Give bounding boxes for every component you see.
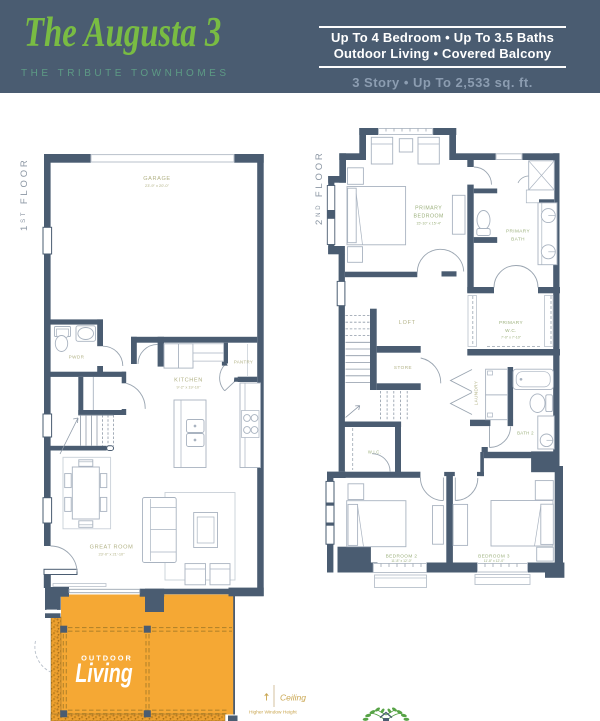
svg-text:BEDROOM: BEDROOM: [414, 214, 444, 220]
svg-text:15'-10" x 15'-4": 15'-10" x 15'-4": [416, 222, 441, 226]
svg-text:GARAGE: GARAGE: [143, 176, 171, 182]
svg-text:Living: Living: [75, 658, 132, 688]
svg-text:23'-9" x 20'-0": 23'-9" x 20'-0": [145, 183, 170, 188]
svg-text:2ND FLOOR: 2ND FLOOR: [314, 150, 325, 225]
svg-text:1ST FLOOR: 1ST FLOOR: [19, 157, 30, 231]
svg-text:STORE: STORE: [394, 365, 412, 370]
svg-text:LOFT: LOFT: [399, 320, 416, 326]
svg-text:BEDROOM 3: BEDROOM 3: [478, 554, 510, 559]
svg-text:9'-2" x 19'-10": 9'-2" x 19'-10": [177, 385, 202, 390]
svg-text:Ceiling: Ceiling: [280, 693, 306, 703]
svg-text:BEDROOM 2: BEDROOM 2: [386, 554, 418, 559]
svg-text:W.I.C.: W.I.C.: [368, 450, 381, 455]
svg-text:GREAT ROOM: GREAT ROOM: [90, 545, 134, 551]
svg-text:PRIMARY: PRIMARY: [415, 206, 442, 212]
svg-text:PRIMARY: PRIMARY: [506, 229, 531, 234]
svg-text:7'-0" x 7'-10": 7'-0" x 7'-10": [501, 336, 522, 340]
svg-text:LAUNDRY: LAUNDRY: [474, 381, 479, 406]
svg-text:PRIMARY: PRIMARY: [499, 320, 524, 325]
svg-text:11'-8" x 12'-0": 11'-8" x 12'-0": [391, 559, 412, 563]
svg-text:23'-0" x 21'-10": 23'-0" x 21'-10": [98, 552, 125, 557]
svg-text:KITCHEN: KITCHEN: [174, 378, 203, 384]
svg-text:PANTRY: PANTRY: [234, 360, 253, 365]
svg-text:Higher Window Height: Higher Window Height: [249, 710, 297, 716]
svg-text:BATH: BATH: [511, 237, 525, 242]
svg-text:PWDR: PWDR: [69, 355, 85, 360]
svg-text:W.C.: W.C.: [505, 328, 517, 333]
svg-text:BATH 2: BATH 2: [517, 431, 534, 436]
svg-text:11'-8" x 12'-0": 11'-8" x 12'-0": [484, 559, 505, 563]
